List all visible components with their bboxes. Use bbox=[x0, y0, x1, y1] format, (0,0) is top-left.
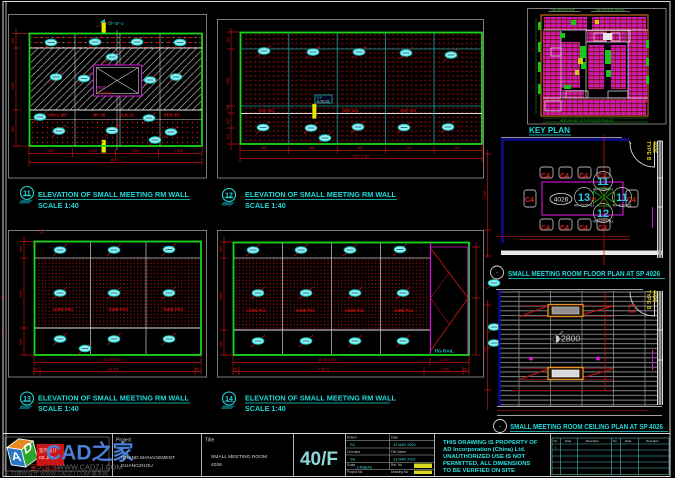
svg-text:C4: C4 bbox=[560, 173, 569, 180]
svg-text:600: 600 bbox=[19, 339, 23, 345]
svg-text:TYPE B: TYPE B bbox=[645, 141, 651, 161]
svg-text:1980: 1980 bbox=[219, 292, 223, 300]
svg-text:900: 900 bbox=[454, 146, 460, 150]
svg-text:WWW.CADZJ.COM: WWW.CADZJ.COM bbox=[57, 463, 123, 472]
svg-text:1 500: 1 500 bbox=[45, 149, 54, 153]
svg-text:Project No: Project No bbox=[347, 470, 363, 474]
svg-text:C4: C4 bbox=[579, 173, 588, 180]
svg-text:三内装修设计 WWW.CADZJ.COM 装饰网: 三内装修设计 WWW.CADZJ.COM 装饰网 bbox=[5, 470, 109, 478]
svg-text:GRP WG: GRP WG bbox=[400, 108, 417, 113]
svg-text:ELEVATION OF SMALL MEETING RM: ELEVATION OF SMALL MEETING RM WALL bbox=[38, 394, 190, 403]
svg-text:1980: 1980 bbox=[11, 82, 15, 90]
svg-text:4026: 4026 bbox=[211, 462, 222, 468]
svg-text:MY 06: MY 06 bbox=[93, 113, 106, 118]
svg-text:480: 480 bbox=[11, 38, 15, 44]
svg-text:ELEVATION OF SMALL MEETING RM: ELEVATION OF SMALL MEETING RM WALL bbox=[38, 190, 190, 199]
svg-text:40-4026-01: 40-4026-01 bbox=[593, 187, 614, 192]
svg-text:THE OFFICE FLR: THE OFFICE FLR bbox=[550, 8, 575, 12]
svg-text:1 500: 1 500 bbox=[440, 368, 449, 372]
svg-text:13: 13 bbox=[23, 396, 31, 403]
svg-text:1 500: 1 500 bbox=[88, 149, 97, 153]
svg-text:1900: 1900 bbox=[226, 77, 230, 85]
svg-text:Scale: Scale bbox=[347, 463, 355, 467]
svg-text:40-4026-01: 40-4026-01 bbox=[574, 203, 595, 208]
svg-text:900: 900 bbox=[261, 146, 267, 150]
svg-text:4026: 4026 bbox=[651, 141, 657, 153]
svg-text:600: 600 bbox=[219, 341, 223, 347]
svg-text:4500: 4500 bbox=[110, 158, 118, 162]
svg-text:C4: C4 bbox=[541, 173, 550, 180]
svg-text:45: 45 bbox=[233, 368, 237, 372]
svg-text:45: 45 bbox=[1, 295, 5, 299]
svg-text:45: 45 bbox=[195, 368, 199, 372]
svg-text:7 500: 7 500 bbox=[483, 346, 487, 355]
svg-text:750: 750 bbox=[226, 105, 230, 111]
svg-text:46 55 4 515: 46 55 4 515 bbox=[318, 358, 337, 362]
svg-text:-: - bbox=[499, 424, 501, 430]
svg-text:C4: C4 bbox=[598, 225, 607, 232]
svg-text:04: 04 bbox=[590, 197, 597, 203]
svg-text:SA: SA bbox=[350, 458, 356, 462]
svg-text:11: 11 bbox=[23, 191, 31, 198]
svg-text:C4: C4 bbox=[579, 225, 588, 232]
svg-text:1:40@A3: 1:40@A3 bbox=[356, 466, 372, 470]
svg-text:No.: No. bbox=[554, 439, 559, 443]
svg-text:150: 150 bbox=[462, 368, 468, 372]
svg-text:400: 400 bbox=[226, 37, 230, 43]
svg-text:T/G RAIL: T/G RAIL bbox=[434, 349, 454, 354]
svg-text:GUANGZHOU: GUANGZHOU bbox=[121, 463, 153, 469]
svg-text:Drawn: Drawn bbox=[347, 436, 357, 440]
svg-text:45: 45 bbox=[34, 368, 38, 372]
svg-text:SMALL MEETING ROOM CEILING PLA: SMALL MEETING ROOM CEILING PLAN AT SP 40… bbox=[510, 422, 663, 431]
svg-text:REF: REF bbox=[97, 85, 106, 90]
svg-text:ELEVATION OF SMALL MEETING RM: ELEVATION OF SMALL MEETING RM WALL bbox=[245, 394, 397, 403]
svg-text:SCALE 1:40: SCALE 1:40 bbox=[38, 404, 79, 413]
svg-text:13 MAY 2002: 13 MAY 2002 bbox=[393, 458, 416, 462]
svg-text:600: 600 bbox=[11, 126, 15, 132]
svg-text:GWB P03: GWB P03 bbox=[53, 307, 73, 312]
svg-text:Date: Date bbox=[565, 439, 572, 443]
svg-text:4026: 4026 bbox=[554, 197, 569, 204]
svg-text:SCALE 1:40: SCALE 1:40 bbox=[245, 404, 286, 413]
svg-text:Date: Date bbox=[625, 439, 632, 443]
svg-text:4507.5 500: 4507.5 500 bbox=[352, 155, 370, 159]
svg-text:C4: C4 bbox=[541, 225, 550, 232]
svg-text:PER 3/5: PER 3/5 bbox=[164, 113, 180, 118]
svg-text:500: 500 bbox=[19, 246, 23, 252]
svg-text:C4: C4 bbox=[525, 197, 534, 204]
svg-text:VINYL WP: VINYL WP bbox=[47, 113, 67, 118]
svg-text:Checked: Checked bbox=[347, 450, 360, 454]
svg-text:Date: Date bbox=[391, 436, 398, 440]
svg-text:Descriptn: Descriptn bbox=[646, 439, 659, 443]
svg-text:4 5075: 4 5075 bbox=[318, 368, 329, 372]
svg-text:Descriptn: Descriptn bbox=[586, 439, 599, 443]
svg-text:2800: 2800 bbox=[561, 334, 580, 344]
svg-text:SU: SU bbox=[350, 443, 356, 447]
svg-text:GRP WG: GRP WG bbox=[342, 108, 359, 113]
svg-text:TYPE B: TYPE B bbox=[645, 290, 651, 310]
svg-text:14: 14 bbox=[225, 396, 233, 403]
svg-text:SMALL MEETING ROOM FLOOR PLAN: SMALL MEETING ROOM FLOOR PLAN AT SP 4026 bbox=[508, 269, 660, 278]
svg-text:-: - bbox=[496, 271, 498, 277]
svg-text:PERMITTED, ALL DIMENSIONS: PERMITTED, ALL DIMENSIONS bbox=[443, 461, 530, 467]
svg-text:ELEVATION OF SMALL MEETING RM: ELEVATION OF SMALL MEETING RM WALL bbox=[245, 190, 397, 199]
svg-text:GWB P03: GWB P03 bbox=[394, 308, 414, 313]
svg-text:44 155 300: 44 155 300 bbox=[103, 358, 121, 362]
svg-text:40-402 -01: 40-402 -01 bbox=[612, 203, 632, 208]
svg-text:45: 45 bbox=[1, 329, 5, 333]
svg-text:45: 45 bbox=[40, 229, 44, 233]
svg-text:GWB P03: GWB P03 bbox=[345, 308, 365, 313]
svg-text:SMALL MEETING ROOM: SMALL MEETING ROOM bbox=[211, 454, 267, 460]
svg-text:40 PLAN KEY 10 2 40 FLOOR PLAN: 40 PLAN KEY 10 2 40 FLOOR PLAN 02 bbox=[560, 119, 614, 123]
svg-text:40/F: 40/F bbox=[300, 449, 338, 470]
svg-text:1 500: 1 500 bbox=[174, 149, 183, 153]
svg-text:1980: 1980 bbox=[19, 290, 23, 298]
svg-text:UNAUTHORIZED USE IS NOT: UNAUTHORIZED USE IS NOT bbox=[443, 454, 526, 460]
svg-text:C4: C4 bbox=[560, 225, 569, 232]
svg-text:40-4026-01: 40-4026-01 bbox=[593, 219, 614, 224]
svg-text:13 MAY 2002: 13 MAY 2002 bbox=[393, 443, 416, 447]
svg-text:Ref. No: Ref. No bbox=[391, 463, 402, 467]
svg-text:File Name: File Name bbox=[391, 450, 406, 454]
svg-text:4F/4FW: 4F/4FW bbox=[97, 91, 114, 96]
svg-text:7 500: 7 500 bbox=[483, 191, 487, 200]
svg-text:GWB P03: GWB P03 bbox=[296, 308, 316, 313]
svg-text:GWB P03: GWB P03 bbox=[247, 308, 267, 313]
svg-text:SCALE 1:40: SCALE 1:40 bbox=[38, 201, 79, 210]
svg-text:1 500: 1 500 bbox=[131, 149, 140, 153]
svg-text:900: 900 bbox=[309, 146, 315, 150]
svg-text:GLB 20: GLB 20 bbox=[119, 113, 134, 118]
svg-text:500: 500 bbox=[219, 246, 223, 252]
svg-text:No.: No. bbox=[613, 439, 618, 443]
svg-text:SCALE 1:40: SCALE 1:40 bbox=[245, 201, 286, 210]
svg-text:Drawing No: Drawing No bbox=[391, 470, 408, 474]
svg-text:600: 600 bbox=[226, 118, 230, 124]
svg-text:GRP WG: GRP WG bbox=[258, 108, 275, 113]
svg-text:4026: 4026 bbox=[651, 290, 657, 302]
svg-text:THE OFFICE OFFICE: THE OFFICE OFFICE bbox=[595, 8, 625, 12]
svg-text:GWB P03: GWB P03 bbox=[163, 307, 183, 312]
svg-text:THIS DRAWING IS PROPERTY OF: THIS DRAWING IS PROPERTY OF bbox=[443, 440, 538, 446]
svg-text:44 300: 44 300 bbox=[108, 368, 119, 372]
svg-text:12: 12 bbox=[225, 193, 233, 200]
svg-text:900: 900 bbox=[357, 146, 363, 150]
svg-text:Project: Project bbox=[116, 438, 132, 444]
svg-text:TO BE VERIFIED ON SITE: TO BE VERIFIED ON SITE bbox=[443, 468, 515, 474]
svg-text:4-YD-01: 4-YD-01 bbox=[317, 100, 330, 104]
svg-text:KEY PLAN: KEY PLAN bbox=[529, 125, 570, 135]
svg-text:900: 900 bbox=[406, 146, 412, 150]
svg-text:Title: Title bbox=[205, 438, 214, 444]
svg-text:GWB P03: GWB P03 bbox=[108, 307, 128, 312]
svg-text:450: 450 bbox=[226, 134, 230, 140]
svg-text:GRAND MANAGEMENT: GRAND MANAGEMENT bbox=[121, 455, 175, 461]
svg-text:1 500: 1 500 bbox=[440, 358, 449, 362]
svg-text:AD Incorporation (China) Ltd.: AD Incorporation (China) Ltd. bbox=[443, 447, 526, 453]
